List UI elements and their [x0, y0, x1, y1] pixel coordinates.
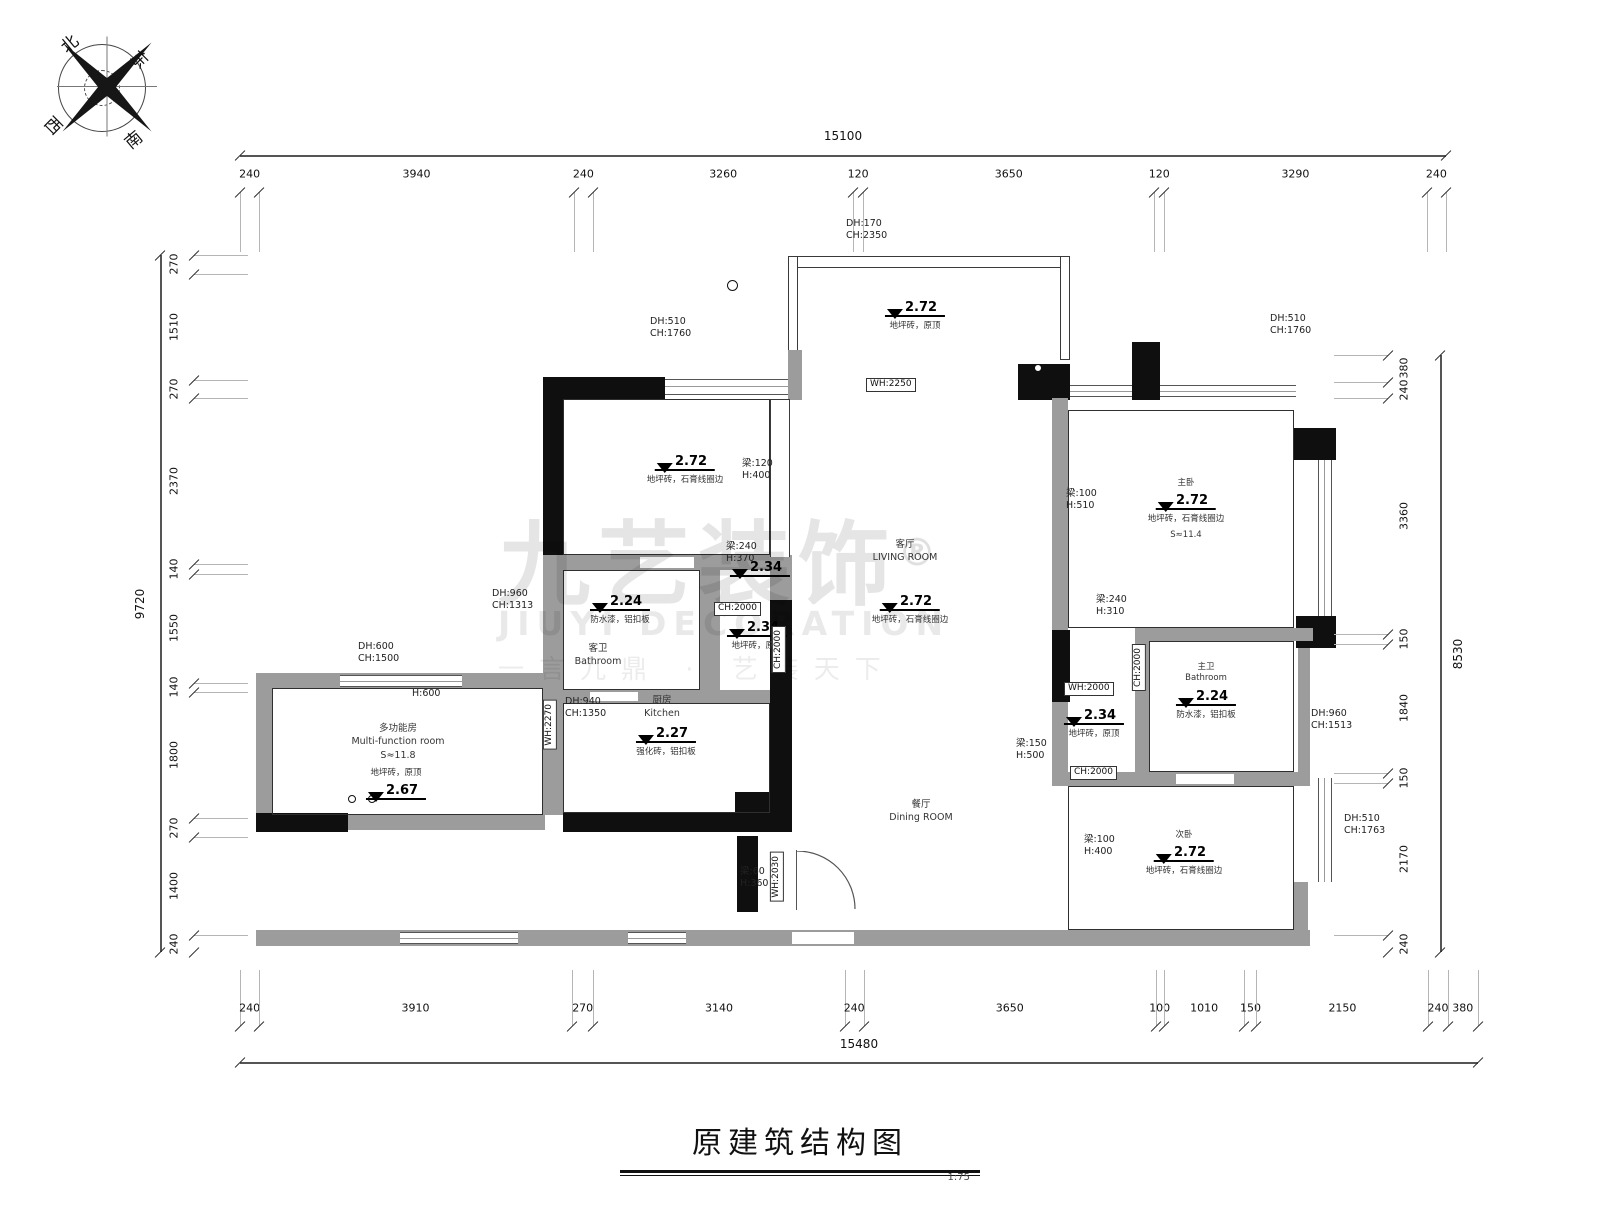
dimension-note: DH:940 CH:1350	[565, 696, 606, 721]
floor-plan: 1510024039402403260120365012032902401548…	[0, 0, 1600, 1219]
dimension-note: 梁:120 H:400	[742, 458, 773, 483]
dim-segment-label: 240	[239, 1002, 260, 1015]
dim-segment-label: 2370	[168, 467, 181, 495]
dim-segment-label: 3650	[995, 168, 1023, 181]
level-value: 2.72	[900, 594, 932, 609]
drawing-title: 原建筑结构图	[678, 1118, 922, 1168]
level-value: 2.72	[1174, 845, 1206, 860]
dimension-note: 梁:240 H:370	[726, 541, 757, 566]
level-triangle-icon	[1156, 854, 1172, 864]
level-note: 地坪砖，原顶	[1064, 729, 1124, 740]
dimension-note: DH:510 CH:1760	[1270, 313, 1311, 338]
room-label: 客厅LIVING ROOM	[873, 538, 938, 565]
title-underline	[620, 1175, 980, 1176]
compass-label-south: 南	[118, 123, 147, 153]
dim-extension-line	[240, 970, 241, 1026]
window	[400, 932, 518, 944]
level-note: 防水漆，铝扣板	[1176, 710, 1236, 721]
wall-segment	[543, 377, 563, 569]
title-underline	[620, 1170, 980, 1173]
level-note: 防水漆，铝扣板	[590, 615, 650, 626]
wall-segment	[1132, 342, 1160, 400]
door-opening	[640, 557, 694, 568]
level-note: 地坪砖，原顶	[885, 321, 945, 332]
balcony-wall	[1060, 256, 1070, 360]
level-marker: 次卧2.72地坪砖，石膏线圈边	[1146, 830, 1223, 878]
dim-segment-label: 3650	[996, 1002, 1024, 1015]
wall-segment	[788, 350, 802, 400]
room-label: 餐厅Dining ROOM	[889, 798, 952, 825]
dim-tick	[1383, 947, 1394, 958]
level-note: 次卧	[1146, 830, 1223, 841]
opening-size-label: CH:2000	[1070, 766, 1117, 780]
dimension-note: DH:600 CH:1500	[358, 641, 399, 666]
fixture-circle	[348, 795, 356, 803]
room-label-line: Kitchen	[644, 707, 680, 720]
dim-line	[160, 255, 162, 952]
dim-extension-line	[864, 970, 865, 1026]
dim-extension-line	[1478, 970, 1479, 1026]
dimension-note: H:600	[412, 688, 440, 700]
wall-segment	[1298, 648, 1310, 778]
dim-extension-line	[194, 274, 248, 275]
title-block: 原建筑结构图 1:75	[620, 1118, 980, 1176]
dim-extension-line	[845, 970, 846, 1026]
dim-segment-label: 240	[1398, 933, 1411, 954]
dim-segment-label: 3940	[403, 168, 431, 181]
dim-extension-line	[1334, 773, 1388, 774]
opening-size-label: WH:2250	[866, 378, 916, 392]
dim-extension-line	[1334, 382, 1388, 383]
wall-segment	[348, 815, 545, 830]
dimension-note: DH:510 CH:1760	[650, 316, 691, 341]
dim-segment-label: 1400	[168, 872, 181, 900]
fixture-circle	[727, 280, 738, 291]
level-value: 2.72	[1176, 493, 1208, 508]
dim-extension-line	[574, 192, 575, 252]
dim-segment-label: 3290	[1281, 168, 1309, 181]
dim-segment-label: 240	[1426, 168, 1447, 181]
level-value: 2.72	[675, 454, 707, 469]
level-triangle-icon	[1178, 698, 1194, 708]
wall-segment	[700, 555, 720, 692]
dim-segment-label: 2170	[1398, 845, 1411, 873]
dim-extension-line	[1448, 970, 1449, 1026]
dimension-note: 梁:60 H:360	[740, 866, 768, 891]
level-note: 地坪砖，石膏线圈边	[1148, 514, 1225, 525]
opening-size-label: CH:2000	[772, 626, 786, 673]
room-label-line: Multi-function room	[351, 735, 444, 748]
dim-extension-line	[194, 818, 248, 819]
dimension-note: DH:170 CH:2350	[846, 218, 887, 243]
dim-line	[1440, 355, 1442, 952]
level-triangle-icon	[657, 463, 673, 473]
wall-segment	[1294, 428, 1336, 460]
level-value-line: 2.67	[366, 779, 426, 800]
balcony-wall	[788, 256, 1070, 268]
room-label: 多功能房Multi-function roomS≈11.8	[351, 722, 444, 762]
dim-extension-line	[194, 692, 248, 693]
dim-segment-label: 3910	[402, 1002, 430, 1015]
dim-segment-label: 270	[168, 379, 181, 400]
dim-line	[240, 155, 1446, 157]
dim-segment-label: 120	[1149, 168, 1170, 181]
dim-extension-line	[1154, 192, 1155, 252]
dim-extension-line	[1334, 935, 1388, 936]
level-note: 地坪砖，石膏线圈边	[647, 475, 724, 486]
dim-segment-label: 270	[168, 817, 181, 838]
window	[628, 932, 686, 944]
level-value: 2.72	[905, 300, 937, 315]
level-marker: 2.72地坪砖，原顶	[885, 296, 945, 332]
window	[1070, 385, 1134, 397]
dim-extension-line	[1156, 970, 1157, 1026]
dim-extension-line	[593, 970, 594, 1026]
opening-size-label: CH:2000	[1132, 644, 1146, 691]
opening-size-label: WH:2000	[1064, 682, 1114, 696]
level-value-line: 2.72	[1154, 841, 1214, 862]
level-triangle-icon	[729, 629, 745, 639]
dim-extension-line	[1334, 398, 1388, 399]
dim-segment-label: 140	[168, 559, 181, 580]
dim-segment-label: 150	[1240, 1002, 1261, 1015]
dim-segment-label: 1010	[1190, 1002, 1218, 1015]
compass-label-west: 西	[40, 110, 70, 140]
level-value-line: 2.72	[1156, 489, 1216, 510]
level-triangle-icon	[638, 735, 654, 745]
fixture-circle	[1034, 364, 1042, 372]
dim-extension-line	[259, 970, 260, 1026]
dim-extension-line	[1256, 970, 1257, 1026]
dim-extension-line	[194, 683, 248, 684]
dim-segment-label: 240	[168, 933, 181, 954]
dim-extension-line	[1164, 970, 1165, 1026]
dim-extension-line	[194, 380, 248, 381]
level-note: Bathroom	[1176, 673, 1236, 684]
level-value-line: 2.24	[590, 590, 650, 611]
level-value-line: 2.72	[885, 296, 945, 317]
dimension-note: 梁:100 H:400	[1084, 834, 1115, 859]
dim-extension-line	[194, 837, 248, 838]
dim-segment-label: 240	[573, 168, 594, 181]
room-label-line: Bathroom	[575, 655, 622, 668]
level-marker: 主卧2.72地坪砖，石膏线圈边S≈11.4	[1148, 478, 1225, 541]
level-triangle-icon	[732, 569, 748, 579]
level-marker: 2.24防水漆，铝扣板	[590, 590, 650, 626]
level-note: 强化砖，铝扣板	[636, 747, 696, 758]
dim-segment-label: 240	[844, 1002, 865, 1015]
level-value-line: 2.34	[1064, 704, 1124, 725]
dim-segment-label: 3360	[1398, 502, 1411, 530]
dim-segment-label: 240	[239, 168, 260, 181]
wall-segment	[1070, 930, 1310, 946]
opening-size-label: CH:2000	[714, 602, 761, 616]
dim-total-label: 15100	[824, 129, 862, 143]
dim-segment-label: 2150	[1328, 1002, 1356, 1015]
dim-segment-label: 1840	[1398, 694, 1411, 722]
level-marker: 2.27强化砖，铝扣板	[636, 722, 696, 758]
opening-size-label: WH:2270	[543, 700, 557, 750]
room-label: 厨房Kitchen	[644, 694, 680, 721]
dim-extension-line	[1334, 355, 1388, 356]
dim-extension-line	[1446, 192, 1447, 252]
window	[1160, 385, 1296, 397]
wall-segment	[563, 813, 792, 832]
dim-segment-label: 1800	[168, 741, 181, 769]
level-marker: 地坪砖，原顶2.67	[366, 768, 426, 800]
dimension-note: 梁:100 H:510	[1066, 488, 1097, 513]
dim-extension-line	[194, 564, 248, 565]
dim-segment-label: 1550	[168, 614, 181, 642]
level-value-line: 2.72	[880, 590, 940, 611]
balcony-wall	[788, 256, 798, 360]
room-label-line: 厨房	[644, 694, 680, 707]
level-value-line: 2.27	[636, 722, 696, 743]
room-label-line: Dining ROOM	[889, 811, 952, 824]
wall-segment	[1018, 364, 1070, 400]
opening-size-label: WH:2030	[770, 852, 784, 902]
room-label: 客卫Bathroom	[575, 642, 622, 669]
dim-extension-line	[259, 192, 260, 252]
dim-extension-line	[1334, 634, 1388, 635]
level-note: 地坪砖，石膏线圈边	[1146, 866, 1223, 877]
level-note: 地坪砖，石膏线圈边	[872, 615, 949, 626]
dim-extension-line	[194, 255, 248, 256]
dim-segment-label: 120	[848, 168, 869, 181]
level-note: 地坪砖，原顶	[366, 768, 426, 779]
dim-total-label: 15480	[840, 1037, 878, 1051]
dimension-note: DH:960 CH:1313	[492, 588, 533, 613]
door-opening	[1176, 774, 1234, 784]
level-triangle-icon	[1158, 502, 1174, 512]
dim-extension-line	[1164, 192, 1165, 252]
level-value: 2.27	[656, 726, 688, 741]
dim-segment-label: 150	[1398, 628, 1411, 649]
dim-segment-label: 150	[1398, 768, 1411, 789]
dimension-note: DH:960 CH:1513	[1311, 708, 1352, 733]
dimension-note: 梁:150 H:500	[1016, 738, 1047, 763]
dim-extension-line	[194, 935, 248, 936]
dim-extension-line	[593, 192, 594, 252]
dim-total-label: 8530	[1451, 638, 1465, 669]
dim-line	[240, 1062, 1478, 1064]
dim-segment-label: 3140	[705, 1002, 733, 1015]
dim-extension-line	[572, 970, 573, 1026]
drawing-scale: 1:75	[948, 1172, 970, 1183]
dim-segment-label: 240	[1398, 379, 1411, 400]
dim-segment-label: 140	[168, 677, 181, 698]
dim-segment-label: 270	[572, 1002, 593, 1015]
level-value: 2.24	[1196, 689, 1228, 704]
dim-extension-line	[1244, 970, 1245, 1026]
dim-extension-line	[1427, 192, 1428, 252]
level-note: 主卧	[1148, 478, 1225, 489]
level-triangle-icon	[887, 309, 903, 319]
level-note: 主卫	[1176, 662, 1236, 673]
wall-segment	[256, 673, 272, 832]
level-value: 2.24	[610, 594, 642, 609]
dim-total-label: 9720	[133, 588, 147, 619]
dim-segment-label: 3260	[709, 168, 737, 181]
dim-extension-line	[1334, 783, 1388, 784]
room-label-line: LIVING ROOM	[873, 551, 938, 564]
wall-segment	[1052, 398, 1068, 632]
dim-tick	[189, 947, 200, 958]
level-triangle-icon	[1066, 717, 1082, 727]
level-value-line: 2.72	[655, 450, 715, 471]
level-value-line: 2.24	[1176, 685, 1236, 706]
compass-rose: 北 东 西 南	[24, 14, 184, 172]
entry-door-opening	[792, 932, 854, 944]
dim-extension-line	[194, 398, 248, 399]
level-triangle-icon	[368, 792, 384, 802]
dim-segment-label: 380	[1398, 358, 1411, 379]
level-note: S≈11.4	[1148, 530, 1225, 541]
window	[340, 675, 462, 687]
dim-extension-line	[240, 192, 241, 252]
level-marker: 2.34地坪砖，原顶	[1064, 704, 1124, 740]
window	[1318, 460, 1332, 618]
dim-segment-label: 380	[1452, 1002, 1473, 1015]
dimension-note: 梁:240 H:310	[1096, 594, 1127, 619]
dim-extension-line	[1428, 970, 1429, 1026]
dim-extension-line	[1334, 644, 1388, 645]
wall-segment	[1135, 628, 1313, 641]
level-marker: 主卫Bathroom2.24防水漆，铝扣板	[1176, 662, 1236, 721]
dim-segment-label: 240	[1428, 1002, 1449, 1015]
wall-segment	[256, 813, 348, 832]
level-marker: 2.72地坪砖，石膏线圈边	[647, 450, 724, 486]
window	[665, 379, 788, 395]
dim-segment-label: 100	[1149, 1002, 1170, 1015]
room-label-line: 客厅	[873, 538, 938, 551]
room-outline	[563, 570, 700, 690]
room-label-line: 多功能房	[351, 722, 444, 735]
wall-segment	[770, 399, 790, 559]
room-label-line: 客卫	[575, 642, 622, 655]
window	[1318, 778, 1332, 882]
door-swing-arc	[797, 851, 859, 913]
dim-extension-line	[194, 574, 248, 575]
room-label-line: S≈11.8	[351, 749, 444, 762]
dimension-note: DH:510 CH:1763	[1344, 813, 1385, 838]
room-label-line: 餐厅	[889, 798, 952, 811]
level-value: 2.67	[386, 783, 418, 798]
dim-segment-label: 270	[168, 254, 181, 275]
dim-segment-label: 1510	[168, 313, 181, 341]
level-value: 2.34	[1084, 708, 1116, 723]
level-marker: 2.72地坪砖，石膏线圈边	[872, 590, 949, 626]
level-triangle-icon	[592, 603, 608, 613]
level-triangle-icon	[882, 603, 898, 613]
